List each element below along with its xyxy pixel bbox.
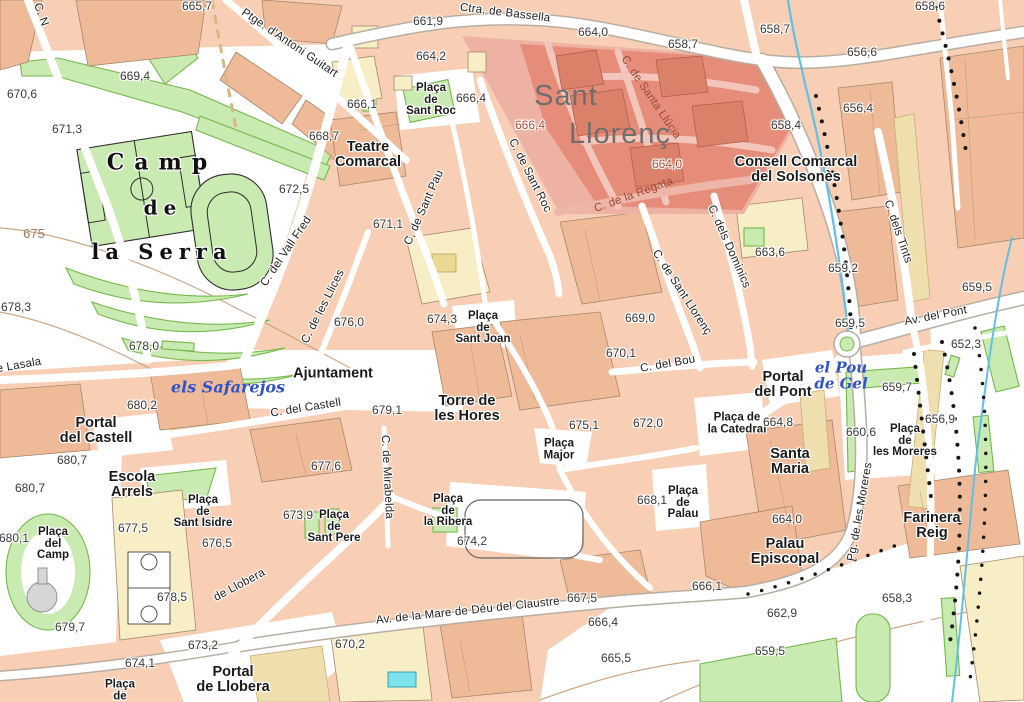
elevation-label: 677,5 xyxy=(118,522,148,534)
street-label: C. N xyxy=(30,2,49,28)
park-label: de xyxy=(144,198,183,219)
elevation-label: 658,7 xyxy=(760,23,790,35)
elevation-label: 671,3 xyxy=(52,123,82,135)
plaza-label: Plaça del Camp xyxy=(37,527,69,562)
elevation-label: 679,1 xyxy=(372,404,402,416)
elevation-label: 674,1 xyxy=(125,657,155,669)
elevation-label: 670,2 xyxy=(335,638,365,650)
district-label: Sant xyxy=(534,81,598,111)
elevation-label: 680,7 xyxy=(15,482,45,494)
plaza-label: Plaça Major xyxy=(544,439,575,462)
elevation-label: 659,5 xyxy=(755,645,785,657)
elevation-label: 667,5 xyxy=(567,592,597,604)
street-label: Av. del Pont xyxy=(904,305,968,329)
elevation-label: 676,0 xyxy=(334,316,364,328)
elevation-label: 680,2 xyxy=(127,399,157,411)
plaza-label: Plaça de la Ribera xyxy=(424,494,473,529)
elevation-label: 656,6 xyxy=(847,46,877,58)
street-label: C. de les Llices xyxy=(300,268,348,346)
elevation-label: 668,7 xyxy=(309,130,339,142)
elevation-label: 656,9 xyxy=(925,413,955,425)
place-label: Torre de les Hores xyxy=(434,394,499,424)
elevation-label: 664,0 xyxy=(578,26,608,38)
plaza-label: Plaça de Sant Roc xyxy=(406,83,456,118)
street-label: Av. de la Mare de Déu del Claustre xyxy=(376,596,561,627)
plaza-label: Plaça de Sant Isidre xyxy=(174,495,233,530)
place-label: Teatre Comarcal xyxy=(335,140,401,170)
elevation-label: 673,2 xyxy=(188,639,218,651)
elevation-label: 664,0 xyxy=(652,158,682,170)
place-label: Palau Episcopal xyxy=(751,537,820,567)
elevation-label: 678,0 xyxy=(129,340,159,352)
elevation-label: 672,5 xyxy=(279,183,309,195)
elevation-label: 658,4 xyxy=(771,119,801,131)
elevation-label: 664,0 xyxy=(772,513,802,525)
street-label: C. de la Regata xyxy=(593,176,675,216)
elevation-label: 669,4 xyxy=(120,70,150,82)
street-label: C. de Sant Pau xyxy=(403,169,447,248)
labels-layer: SantLlorençCampdela SerraPlaça de Sant R… xyxy=(0,0,1024,702)
elevation-label: 666,4 xyxy=(515,119,545,131)
place-label: Escola Arrels xyxy=(109,470,156,500)
park-label: la Serra xyxy=(91,241,232,263)
place-label: Portal del Pont xyxy=(754,370,811,400)
elevation-label: 663,6 xyxy=(755,246,785,258)
elevation-label: 680,1 xyxy=(0,532,29,544)
elevation-label: 677,6 xyxy=(311,460,341,472)
elevation-label: 656,4 xyxy=(843,102,873,114)
street-label: Ptge. d'Antoni Guitart xyxy=(239,7,340,80)
elevation-label: 666,4 xyxy=(588,616,618,628)
elevation-label: 665,7 xyxy=(182,0,212,12)
elevation-label: 658,3 xyxy=(882,592,912,604)
elevation-label: 674,3 xyxy=(427,313,457,325)
elevation-label: 659,7 xyxy=(882,381,912,393)
elevation-label: 658,7 xyxy=(668,38,698,50)
elevation-label: 675,1 xyxy=(569,419,599,431)
elevation-label: 659,2 xyxy=(828,262,858,274)
plaza-label: Plaça de Palau xyxy=(668,486,699,521)
street-label: C. dels Tints xyxy=(881,199,914,265)
elevation-label: 676,5 xyxy=(202,537,232,549)
street-label: C. del Castell xyxy=(270,398,342,421)
street-label: de Llobera xyxy=(212,567,267,604)
elevation-label: 666,1 xyxy=(347,98,377,110)
elevation-label: 679,7 xyxy=(55,621,85,633)
place-label: Consell Comarcal del Solsonès xyxy=(735,155,858,185)
street-label: C. de Sant Roc xyxy=(505,137,552,214)
elevation-label: 668,1 xyxy=(637,494,667,506)
elevation-label: 662,9 xyxy=(767,607,797,619)
place-label: Portal del Castell xyxy=(60,416,133,446)
elevation-label: 661,9 xyxy=(413,15,443,27)
elevation-label: 666,1 xyxy=(692,580,722,592)
elevation-label: 678,3 xyxy=(1,301,31,313)
place-label: Ajuntament xyxy=(293,366,373,381)
elevation-label: 672,0 xyxy=(633,417,663,429)
plaza-label: Plaça de Sant Joan xyxy=(456,311,511,346)
street-label: Pg. de les Moreres xyxy=(846,462,875,563)
elevation-label: 664,8 xyxy=(763,416,793,428)
place-label: Portal de Llobera xyxy=(196,665,269,695)
elevation-label: 659,5 xyxy=(962,281,992,293)
elevation-label: 678,5 xyxy=(157,591,187,603)
town-map: SantLlorençCampdela SerraPlaça de Sant R… xyxy=(0,0,1024,702)
street-label: C. de Sant Llorenç xyxy=(649,248,713,337)
plaza-label: Plaça de les Moreres xyxy=(873,424,937,459)
plaza-label: Plaça de la Catedral xyxy=(708,413,767,436)
elevation-label: 674,2 xyxy=(457,535,487,547)
street-label: C. dels Dominics xyxy=(704,204,751,291)
plaza-label: Plaça de xyxy=(105,680,135,702)
elevation-label: 670,1 xyxy=(606,347,636,359)
street-label: C. del Vall Fred xyxy=(259,215,315,289)
place-label: Santa Maria xyxy=(770,447,810,477)
street-label: de Lasala xyxy=(0,357,42,378)
street-label: C. de Mirabelda xyxy=(378,435,394,520)
elevation-label: 680,7 xyxy=(57,454,87,466)
elevation-label: 652,3 xyxy=(951,338,981,350)
elevation-label: 671,1 xyxy=(373,218,403,230)
elevation-label: 666,4 xyxy=(456,92,486,104)
district-label: Llorenç xyxy=(569,119,671,149)
street-label: C. del Bou xyxy=(640,354,697,375)
elevation-label: 660,6 xyxy=(846,426,876,438)
elevation-label: 659,5 xyxy=(835,317,865,329)
street-label: Ctra. de Bassella xyxy=(459,3,551,26)
water-feature-label: els Safarejos xyxy=(171,380,285,397)
park-label: Camp xyxy=(107,152,217,175)
contour-elevation-label: 675 xyxy=(23,227,45,241)
place-label: Farinera Reig xyxy=(903,511,960,541)
elevation-label: 658,6 xyxy=(915,0,945,12)
elevation-label: 670,6 xyxy=(7,88,37,100)
elevation-label: 665,5 xyxy=(601,652,631,664)
elevation-label: 664,2 xyxy=(416,50,446,62)
elevation-label: 669,0 xyxy=(625,312,655,324)
elevation-label: 673,9 xyxy=(283,509,313,521)
street-label: C. de Santa Llúcia xyxy=(618,54,682,142)
plaza-label: Plaça de Sant Pere xyxy=(307,510,360,545)
water-feature-label: el Pou de Gel xyxy=(814,360,867,391)
